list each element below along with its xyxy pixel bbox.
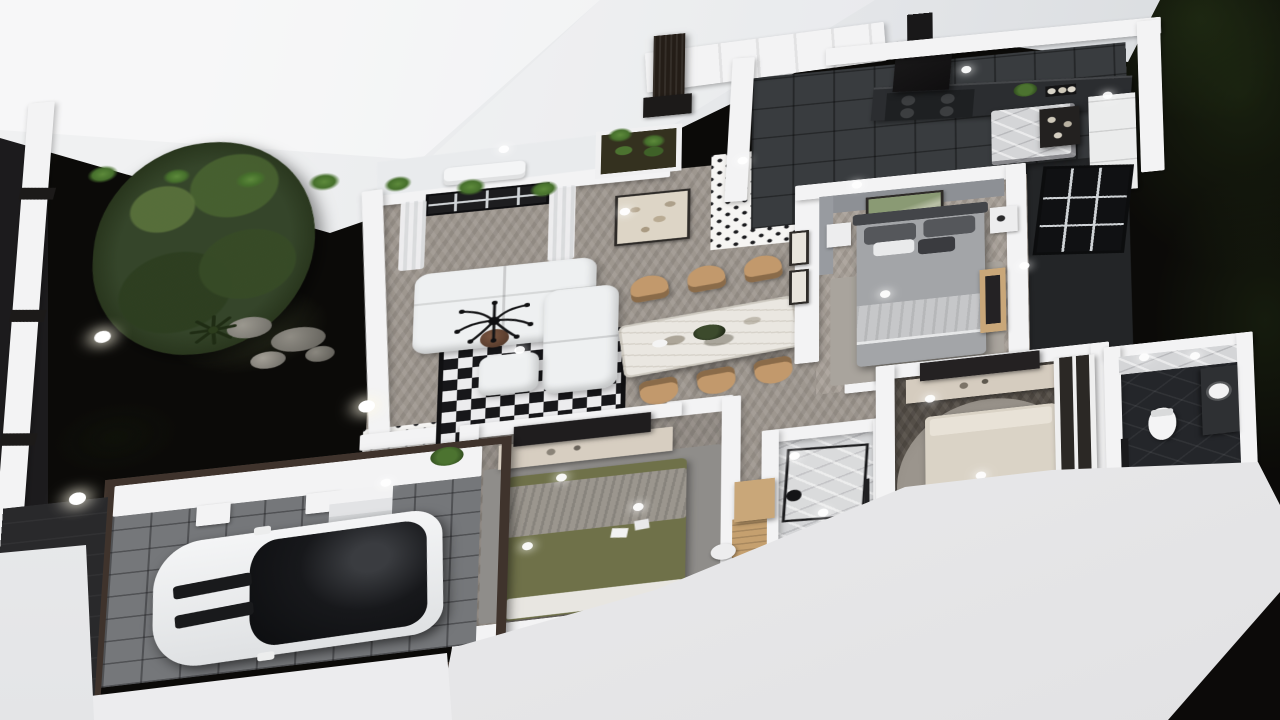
wall-slat — [18, 188, 56, 200]
master-bed — [856, 206, 986, 367]
curtain — [398, 200, 427, 271]
pillow-white — [873, 239, 914, 257]
book-card — [634, 519, 650, 531]
vanity-counter — [1201, 365, 1240, 436]
wood-console — [734, 478, 775, 523]
hall-wall-art — [789, 230, 809, 266]
book-card — [610, 528, 628, 538]
entry-credenza — [643, 93, 692, 118]
planter-palm — [603, 124, 638, 145]
abstract-wall-art — [614, 188, 690, 246]
entry-door — [653, 33, 686, 102]
knit-throw — [506, 468, 687, 539]
curtain — [547, 185, 576, 262]
master-tv-panel — [985, 275, 1001, 325]
open-shelf-unit — [1039, 106, 1080, 148]
nightstand — [827, 222, 851, 248]
floorplan-render-scene — [0, 0, 1280, 720]
agave-plant-icon — [187, 311, 240, 349]
toilet-tank — [1151, 408, 1173, 417]
sofa-ottoman — [478, 351, 539, 397]
wall-slat — [9, 310, 47, 322]
planter-palm — [636, 132, 672, 149]
hall-wall-art — [789, 269, 809, 305]
black-towel — [1121, 438, 1129, 471]
palm-plant — [156, 166, 198, 186]
cooktop — [885, 89, 975, 121]
garage-pillar — [196, 502, 231, 526]
palm-plant — [300, 170, 349, 192]
wall-slat — [0, 433, 38, 446]
pillow-accent — [918, 236, 955, 255]
pillow-dark — [923, 215, 975, 238]
palm-plant — [449, 175, 493, 198]
sectional-sofa-chaise — [542, 284, 619, 395]
chandelier — [447, 287, 541, 357]
nightstand — [990, 205, 1018, 233]
master-right-wall — [1006, 163, 1030, 376]
glass-grid-door — [1036, 167, 1130, 252]
kitchen-right-wall — [1137, 19, 1165, 172]
